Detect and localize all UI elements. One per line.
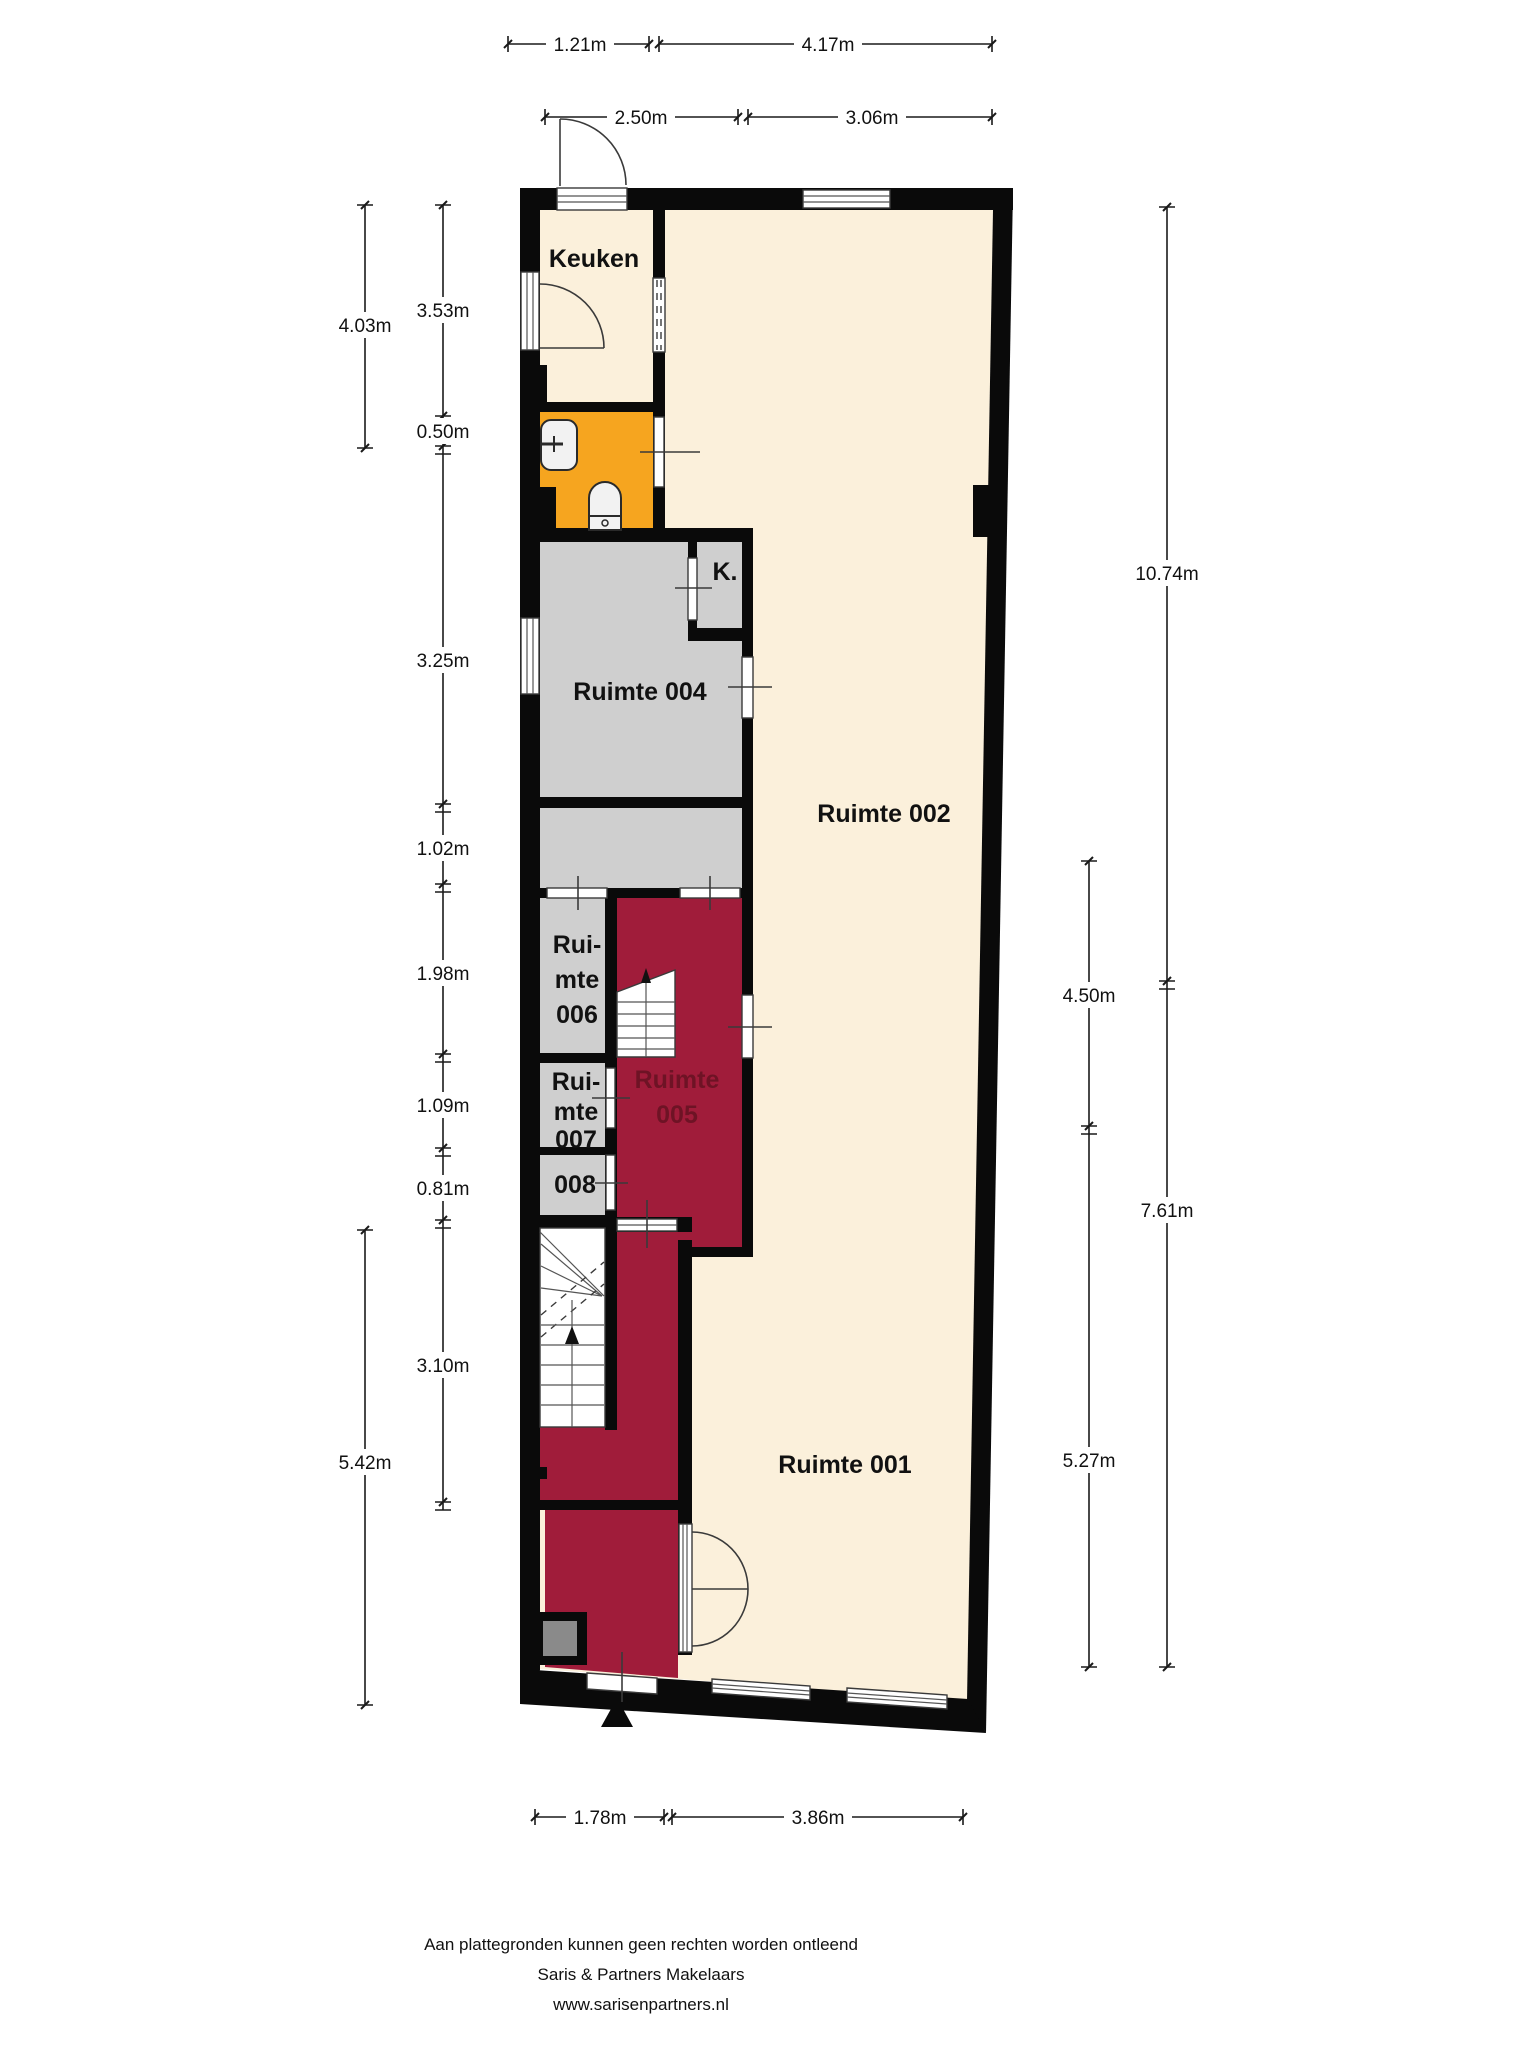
room-label-k: K. xyxy=(713,558,738,586)
dim-left-1-98: 1.98m xyxy=(417,964,470,985)
room-label-006-line1: Rui- xyxy=(553,931,602,959)
dim-right-4-50: 4.50m xyxy=(1063,986,1116,1007)
wall-004-bottom xyxy=(540,797,753,808)
left-window xyxy=(521,618,539,694)
wall-hall-bottom xyxy=(538,1500,692,1510)
room-label-001: Ruimte 001 xyxy=(778,1451,911,1479)
floorplan-page: Keuken Ruimte 002 Ruimte 001 Ruimte 004 … xyxy=(0,0,1536,2048)
keuken-002-opening xyxy=(653,278,665,352)
dim-left-1-09: 1.09m xyxy=(417,1096,470,1117)
dim-left-3-25: 3.25m xyxy=(417,651,470,672)
wall-006-bottom xyxy=(540,1053,617,1063)
dim-top-3-06: 3.06m xyxy=(846,108,899,129)
room-label-005-line2: 005 xyxy=(656,1101,698,1129)
footer: Aan plattegronden kunnen geen rechten wo… xyxy=(424,1935,858,2014)
dim-left-0-50: 0.50m xyxy=(417,422,470,443)
dim-left-0-81: 0.81m xyxy=(417,1179,470,1200)
footer-company: Saris & Partners Makelaars xyxy=(538,1965,745,1984)
red-hall-lower-area xyxy=(540,1427,678,1500)
meter-cabinet xyxy=(543,1621,577,1656)
dim-bottom-1-78: 1.78m xyxy=(574,1808,627,1829)
top-door-frame xyxy=(557,188,627,210)
room-label-006-line3: 006 xyxy=(556,1001,598,1029)
dim-right-10-74: 10.74m xyxy=(1135,564,1198,585)
dim-left-4-03: 4.03m xyxy=(339,316,392,337)
footer-website: www.sarisenpartners.nl xyxy=(552,1995,729,2014)
dim-right-7-61: 7.61m xyxy=(1141,1201,1194,1222)
room-label-005-line1: Ruimte xyxy=(635,1066,720,1094)
staircase-lower xyxy=(540,1228,605,1427)
wall-bath-top xyxy=(523,402,665,412)
dim-bottom-3-86: 3.86m xyxy=(792,1808,845,1829)
wall-pier-left-3 xyxy=(536,1467,547,1479)
room-label-007-line3: 007 xyxy=(555,1126,597,1154)
footer-disclaimer: Aan plattegronden kunnen geen rechten wo… xyxy=(424,1935,858,1954)
room-label-006-line2: mte xyxy=(555,966,600,994)
room-label-008: 008 xyxy=(554,1171,596,1199)
wall-pier-right xyxy=(973,485,994,537)
dim-top-1-21: 1.21m xyxy=(554,35,607,56)
dim-top-4-17: 4.17m xyxy=(802,35,855,56)
top-window xyxy=(803,190,890,208)
wall-008-bottom xyxy=(540,1215,617,1228)
dim-left-3-10: 3.10m xyxy=(417,1356,470,1377)
dim-left-1-02: 1.02m xyxy=(417,839,470,860)
toilet-icon xyxy=(589,482,621,530)
floor-plan-svg: Keuken Ruimte 002 Ruimte 001 Ruimte 004 … xyxy=(0,0,1536,2048)
wall-bath-bottom xyxy=(523,528,753,542)
room-label-007-line1: Rui- xyxy=(552,1068,601,1096)
dim-left-5-42: 5.42m xyxy=(339,1453,392,1474)
room-label-007-line2: mte xyxy=(554,1098,599,1126)
wall-k-bottom xyxy=(688,628,753,641)
dim-right-5-27: 5.27m xyxy=(1063,1451,1116,1472)
corridor-area xyxy=(540,808,742,888)
wall-005-bottom xyxy=(683,1247,753,1257)
room-label-004: Ruimte 004 xyxy=(573,678,706,706)
dim-left-3-53: 3.53m xyxy=(417,301,470,322)
room-label-keuken: Keuken xyxy=(549,245,639,273)
room-label-002: Ruimte 002 xyxy=(817,800,950,828)
dim-top-2-50: 2.50m xyxy=(615,108,668,129)
